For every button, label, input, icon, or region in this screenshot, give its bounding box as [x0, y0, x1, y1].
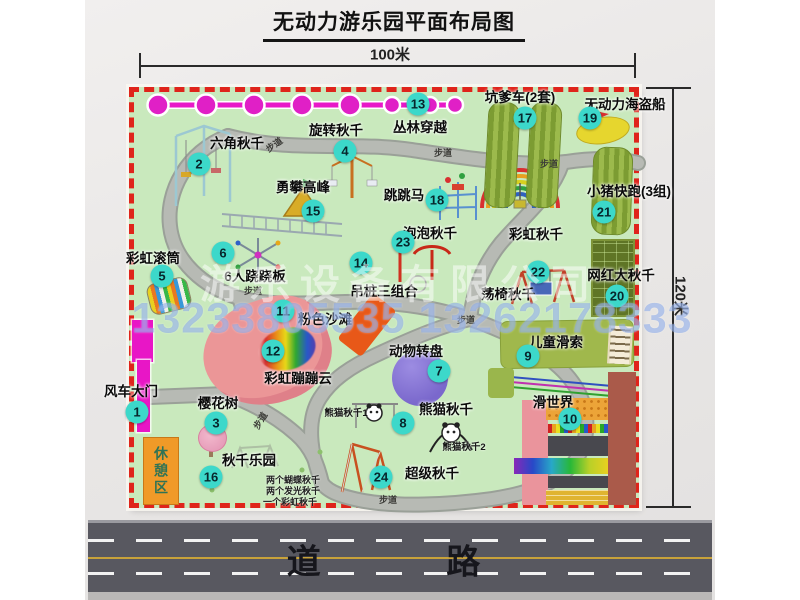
height-dim-tick-bottom [646, 506, 691, 508]
label-panda-swing-2: 熊猫秋千2 [442, 439, 485, 453]
slide-band-dark-1 [548, 436, 608, 456]
label-windmill-gate: 风车大门 [104, 380, 158, 400]
bubble-5: 5 [151, 265, 174, 288]
page-title: 无动力游乐园平面布局图 [263, 4, 525, 42]
label-swing-park: 秋千乐园 [222, 449, 276, 469]
label-piggy-run: 小猪快跑(3组) [587, 180, 671, 200]
bubble-13: 13 [407, 93, 430, 116]
label-climbing-peak: 勇攀高峰 [276, 176, 330, 196]
bubble-23: 23 [392, 231, 415, 254]
label-jumping-horse: 跳跳马 [384, 184, 425, 204]
bubble-19: 19 [579, 107, 602, 130]
label-rainbow-roller: 彩虹滚筒 [126, 247, 180, 267]
slide-band-dark-2 [548, 476, 608, 488]
label-rotating-swing: 旋转秋千 [309, 119, 363, 139]
bubble-15: 15 [302, 200, 325, 223]
bubble-21: 21 [593, 201, 616, 224]
bubble-1: 1 [126, 401, 149, 424]
label-panda-swing-1: 熊猫秋千1 [324, 405, 367, 419]
width-dim-tick-left [139, 53, 141, 78]
bubble-24: 24 [370, 466, 393, 489]
swing-list-line-3: 一个彩虹秋千 [263, 495, 317, 508]
bubble-8: 8 [392, 412, 415, 435]
rest-area-label: 休憩区 [151, 446, 171, 497]
road-shoulder [88, 592, 712, 600]
path-label: 步道 [540, 157, 558, 170]
label-rainbow-swing: 彩虹秋千 [509, 223, 563, 243]
label-jungle-crossing: 丛林穿越 [393, 116, 447, 136]
width-dimension-label: 100米 [370, 44, 410, 65]
slide-band-yellow-wave [546, 490, 608, 505]
bubble-18: 18 [426, 189, 449, 212]
label-super-swing: 超级秋千 [405, 462, 459, 482]
screenshot-stage: 无动力游乐园平面布局图 100米 120米 休憩区 [0, 0, 800, 600]
bubble-7: 7 [428, 360, 451, 383]
slide-world-right-strip [608, 372, 636, 505]
bubble-10: 10 [559, 408, 582, 431]
watermark-phone: 13233805535 13262178333 [131, 295, 692, 344]
rest-area: 休憩区 [143, 437, 179, 505]
bubble-9: 9 [517, 345, 540, 368]
height-dim-tick-top [646, 87, 691, 89]
width-dim-tick-right [634, 53, 636, 78]
bubble-17: 17 [514, 107, 537, 130]
slide-world-zone [512, 372, 638, 505]
path-label: 步道 [379, 493, 397, 506]
slide-world-left-strip [522, 400, 548, 505]
bubble-3: 3 [205, 412, 228, 435]
road: 道 路 [88, 520, 712, 598]
label-rainbow-cloud: 彩虹蹦蹦云 [264, 367, 332, 387]
path-label: 步道 [434, 146, 452, 159]
bubble-16: 16 [200, 466, 223, 489]
label-panda-swing: 熊猫秋千 [419, 398, 473, 418]
slide-entry-pad [488, 368, 514, 398]
label-cherry-tree: 樱花树 [198, 392, 239, 412]
label-hexagon-swing: 六角秋千 [210, 132, 264, 152]
bubble-2: 2 [188, 153, 211, 176]
bubble-4: 4 [334, 140, 357, 163]
width-dimension-line [140, 65, 636, 67]
road-label: 道 路 [287, 535, 538, 584]
label-pit-cart: 坑爹车(2套) [485, 86, 556, 106]
slide-band-rainbow-grad [514, 458, 608, 474]
